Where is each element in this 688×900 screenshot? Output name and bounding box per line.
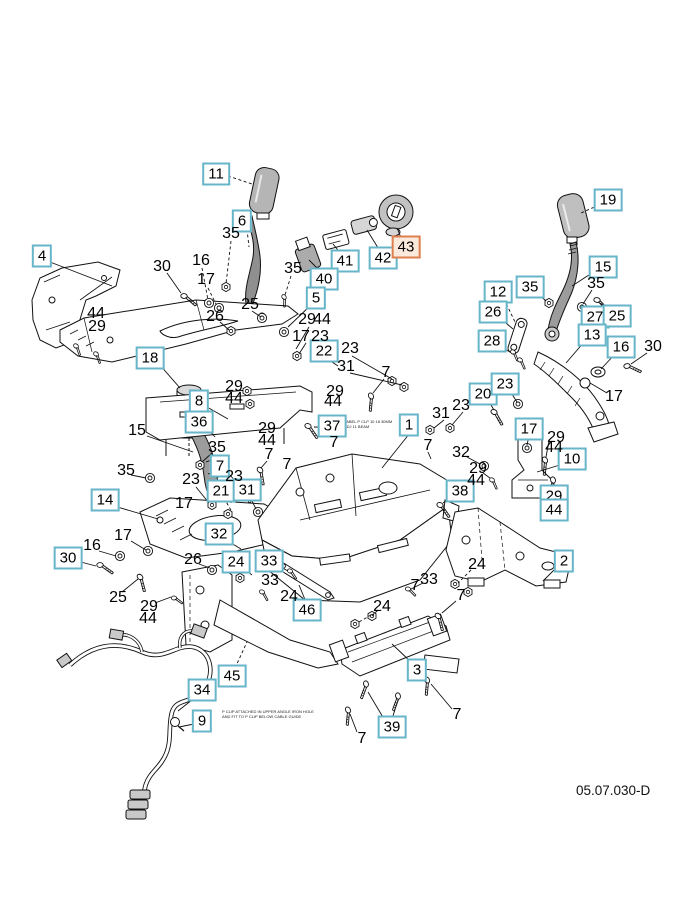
callout-25-plain: 25: [241, 297, 259, 313]
callout-1[interactable]: 1: [399, 414, 419, 437]
diagram-code: 05.07.030-D: [576, 783, 650, 798]
callout-7-plain: 7: [283, 457, 292, 473]
callout-44-plain: 44: [139, 611, 157, 627]
callout-23-plain: 23: [341, 341, 359, 357]
callout-29-plain: 29: [88, 319, 106, 335]
callout-7-plain: 7: [358, 731, 367, 747]
callout-18[interactable]: 18: [136, 347, 165, 370]
callout-23-plain: 23: [182, 472, 200, 488]
callout-16[interactable]: 16: [607, 336, 636, 359]
callout-13[interactable]: 13: [578, 324, 607, 347]
callout-23-plain: 23: [452, 398, 470, 414]
callout-26-plain: 26: [206, 309, 224, 325]
callout-23-plain: 23: [225, 469, 243, 485]
part-link-rod: [507, 317, 529, 355]
callout-7-plain: 7: [411, 578, 420, 594]
callout-30-plain: 30: [153, 259, 171, 275]
callout-33-plain: 33: [420, 572, 438, 588]
parts-diagram-page: 4116414243405191535122627252813161883622…: [0, 0, 688, 900]
callout-44[interactable]: 44: [540, 499, 569, 522]
annotation-note-2: P CLIP ATTACHED IN UPPER ANGLE IRON HOLE…: [222, 709, 314, 720]
callout-23-plain: 23: [311, 329, 329, 345]
callout-43[interactable]: 43: [392, 236, 421, 259]
callout-4[interactable]: 4: [32, 245, 52, 268]
callout-24-plain: 24: [373, 599, 391, 615]
callout-31-plain: 31: [337, 359, 355, 375]
callout-7-plain: 7: [457, 588, 466, 604]
callout-44-plain: 44: [313, 312, 331, 328]
callout-16-plain: 16: [192, 253, 210, 269]
callout-44-plain: 44: [324, 394, 342, 410]
callout-35-plain: 35: [117, 463, 135, 479]
annotation-note-1: LABEL P CLP 10 18 30MMADJ 11 BEAM: [344, 419, 392, 430]
callout-8[interactable]: 8: [189, 390, 209, 413]
part-bolts-39: [356, 680, 403, 711]
callout-32[interactable]: 32: [205, 523, 234, 546]
callout-17-plain: 17: [605, 389, 623, 405]
callout-33-plain: 33: [261, 573, 279, 589]
callout-5[interactable]: 5: [306, 287, 326, 310]
callout-24[interactable]: 24: [222, 551, 251, 574]
callout-30-plain: 30: [644, 339, 662, 355]
callout-17-plain: 17: [292, 329, 310, 345]
callout-19[interactable]: 19: [594, 189, 623, 212]
callout-2[interactable]: 2: [554, 550, 574, 573]
callout-35-plain: 35: [587, 276, 605, 292]
callout-17-plain: 17: [114, 528, 132, 544]
callout-44-plain: 44: [545, 440, 563, 456]
callout-32-plain: 32: [452, 445, 470, 461]
callout-7-plain: 7: [330, 435, 339, 451]
callout-36[interactable]: 36: [185, 411, 214, 434]
part-wiring-harness: [57, 624, 211, 819]
callout-45[interactable]: 45: [218, 665, 247, 688]
callout-31-plain: 31: [432, 406, 450, 422]
part-knob-top: [248, 166, 281, 219]
callout-11[interactable]: 11: [202, 163, 230, 186]
part-knob-right: [555, 191, 591, 243]
callout-24-plain: 24: [468, 557, 486, 573]
callout-9[interactable]: 9: [192, 710, 212, 733]
callout-17-plain: 17: [197, 272, 215, 288]
callout-7-plain: 7: [265, 447, 274, 463]
callout-7-plain: 7: [424, 438, 433, 454]
callout-35-plain: 35: [208, 440, 226, 456]
callout-16-plain: 16: [83, 538, 101, 554]
callout-35-plain: 35: [222, 226, 240, 242]
callout-35[interactable]: 35: [516, 276, 545, 299]
callout-3[interactable]: 3: [407, 659, 427, 682]
callout-26[interactable]: 26: [479, 301, 508, 324]
callout-28[interactable]: 28: [478, 330, 507, 353]
callout-44-plain: 44: [467, 473, 485, 489]
callout-14[interactable]: 14: [91, 489, 120, 512]
callout-23[interactable]: 23: [491, 373, 520, 396]
callout-39[interactable]: 39: [378, 716, 407, 739]
callout-24-plain: 24: [280, 589, 298, 605]
callout-33[interactable]: 33: [255, 550, 284, 573]
callout-44-plain: 44: [225, 391, 243, 407]
callout-17[interactable]: 17: [515, 418, 544, 441]
part-lever-right: [545, 242, 578, 341]
callout-17-plain: 17: [175, 496, 193, 512]
callout-35-plain: 35: [284, 261, 302, 277]
callout-34[interactable]: 34: [188, 679, 217, 702]
callout-25[interactable]: 25: [603, 305, 632, 328]
callout-26-plain: 26: [184, 552, 202, 568]
callout-30[interactable]: 30: [54, 547, 83, 570]
callout-25-plain: 25: [109, 590, 127, 606]
callout-7-plain: 7: [453, 707, 462, 723]
callout-7-plain: 7: [382, 365, 391, 381]
callout-15-plain: 15: [128, 423, 146, 439]
